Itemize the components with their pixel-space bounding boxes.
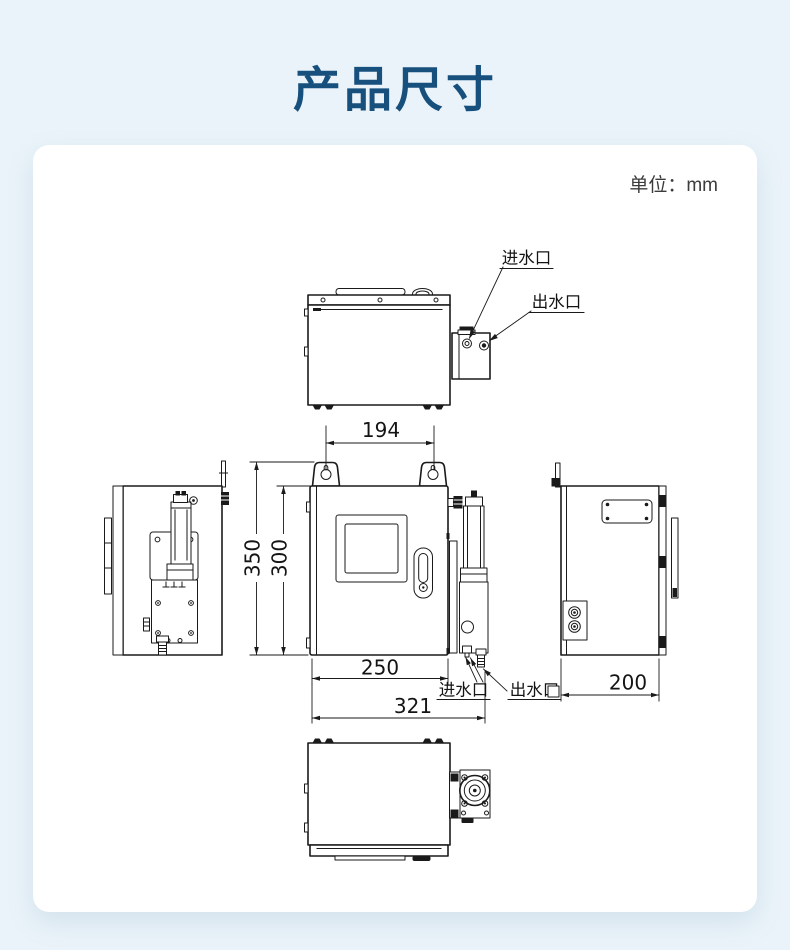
dim-300: 300 [268,539,292,577]
keyhole-right [428,470,438,480]
top-view: 进水口 出水口 [305,249,585,410]
bottom-flange [310,845,448,856]
handle-side-profile [672,518,679,598]
top-body [308,305,450,405]
dim-250: 250 [361,656,399,680]
technical-drawing: 进水口 出水口 [0,0,790,950]
dim-321: 321 [394,694,432,718]
left-side-view [105,461,230,655]
hinge-strip [659,486,666,655]
left-gland [221,492,229,505]
inlet-fitting [463,646,472,653]
dim-194: 194 [362,418,400,442]
vent-plate [602,500,652,523]
dim-350: 350 [241,539,265,577]
top-inlet-label: 进水口 [502,249,552,268]
datum-marker [548,686,559,697]
left-door-edge [113,486,123,655]
bottom-inlet-label: 进水口 [439,681,489,700]
top-flange [308,295,450,305]
top-valve [460,327,474,331]
right-side-view [552,463,679,655]
front-view [307,463,489,668]
dim-200: 200 [609,671,647,695]
left-ear-tab [222,461,226,487]
top-port-block [452,333,490,379]
bottom-body [308,743,450,845]
top-handle [336,289,405,296]
left-cylinder [171,502,191,564]
side-block [460,582,489,653]
keyhole-left [321,470,331,480]
outlet-fitting [476,649,486,655]
cable-gland [454,496,463,509]
top-outlet-label: 出水口 [532,293,582,312]
left-handle-edge [105,518,112,594]
bottom-view [305,739,491,862]
